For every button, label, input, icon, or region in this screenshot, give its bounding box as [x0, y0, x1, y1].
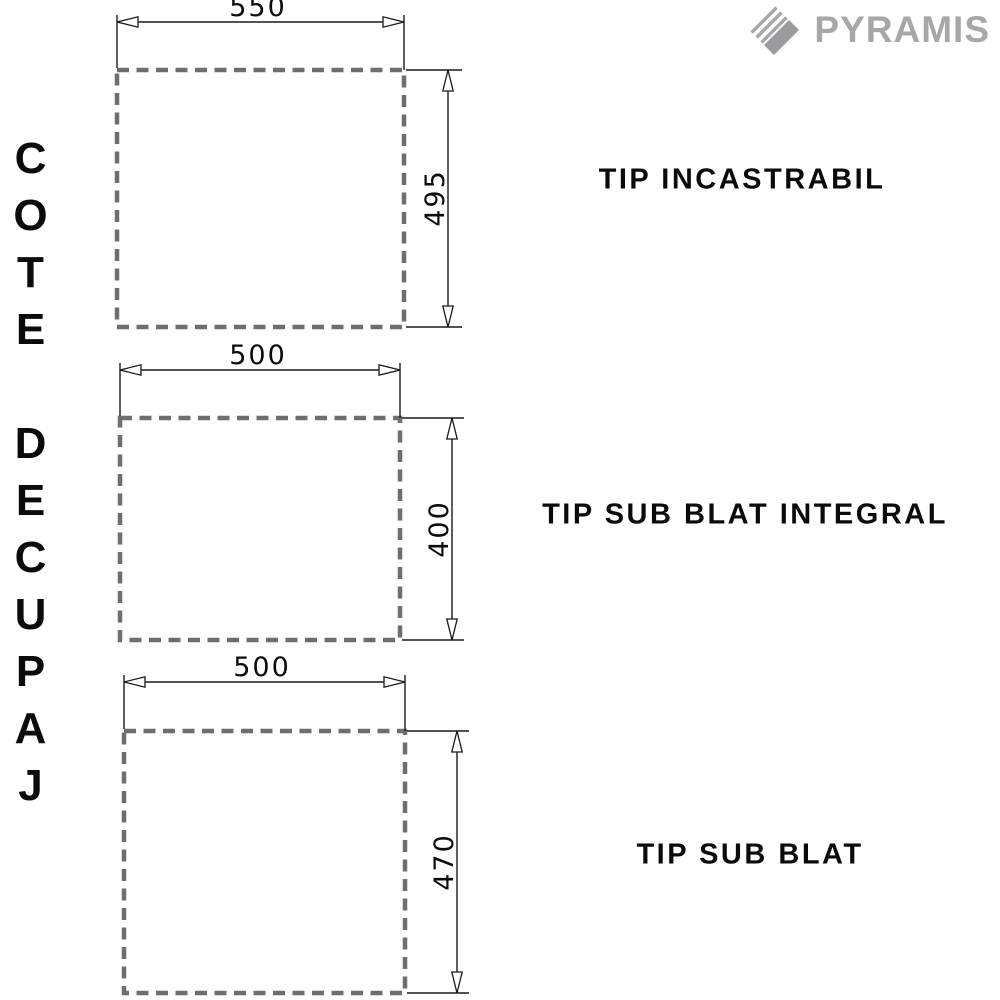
- label-tip-incastrabil: TIP INCASTRABIL: [599, 164, 886, 197]
- cutout-dimensions-page: COTE DECUPAJ PYRAMIS 550: [0, 0, 1000, 1000]
- cutout-outline-sub-blat-integral: [120, 418, 400, 640]
- arrowhead-left: [120, 365, 141, 375]
- height-dimension-sub-blat: 470: [407, 731, 469, 993]
- arrowhead-right: [379, 365, 400, 375]
- height-dimension-incastrabil: 495: [406, 70, 462, 327]
- height-value-incastrabil: 495: [420, 169, 451, 227]
- arrowhead-down: [452, 972, 462, 993]
- width-dimension-sub-blat-integral: 500: [120, 340, 400, 418]
- arrowhead-up: [452, 731, 462, 752]
- label-tip-sub-blat: TIP SUB BLAT: [636, 839, 863, 872]
- arrowhead-right: [384, 677, 405, 687]
- height-dimension-sub-blat-integral: 400: [402, 418, 464, 640]
- arrowhead-right: [383, 17, 404, 27]
- arrowhead-up: [443, 70, 453, 91]
- figure-tip-incastrabil: 550 495: [117, 0, 462, 327]
- width-value-sub-blat-integral: 500: [229, 340, 287, 371]
- height-value-sub-blat-integral: 400: [424, 500, 455, 558]
- label-tip-sub-blat-integral: TIP SUB BLAT INTEGRAL: [542, 499, 948, 532]
- arrowhead-left: [124, 677, 145, 687]
- width-dimension-sub-blat: 500: [124, 652, 405, 731]
- arrowhead-left: [117, 17, 138, 27]
- cutout-outline-incastrabil: [117, 70, 404, 327]
- cutout-outline-sub-blat: [124, 731, 405, 993]
- arrowhead-down: [443, 306, 453, 327]
- figure-tip-sub-blat: 500 470: [124, 652, 469, 993]
- width-dimension-incastrabil: 550: [117, 0, 404, 70]
- width-value-sub-blat: 500: [233, 652, 291, 683]
- figure-tip-sub-blat-integral: 500 400: [120, 340, 464, 640]
- height-value-sub-blat: 470: [429, 833, 460, 891]
- arrowhead-down: [447, 619, 457, 640]
- width-value-incastrabil: 550: [229, 0, 287, 23]
- arrowhead-up: [447, 418, 457, 439]
